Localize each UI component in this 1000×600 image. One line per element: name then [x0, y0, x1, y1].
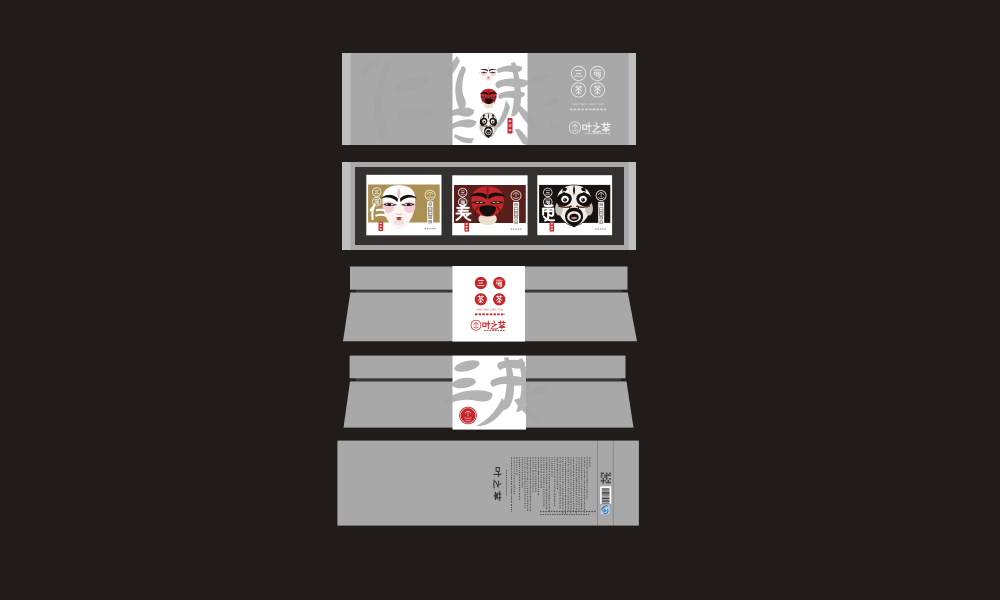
svg-text:SAN SHU JIAO YUN: SAN SHU JIAO YUN [572, 102, 604, 106]
svg-text:SAN SHU JIAO YUN: SAN SHU JIAO YUN [476, 308, 503, 311]
